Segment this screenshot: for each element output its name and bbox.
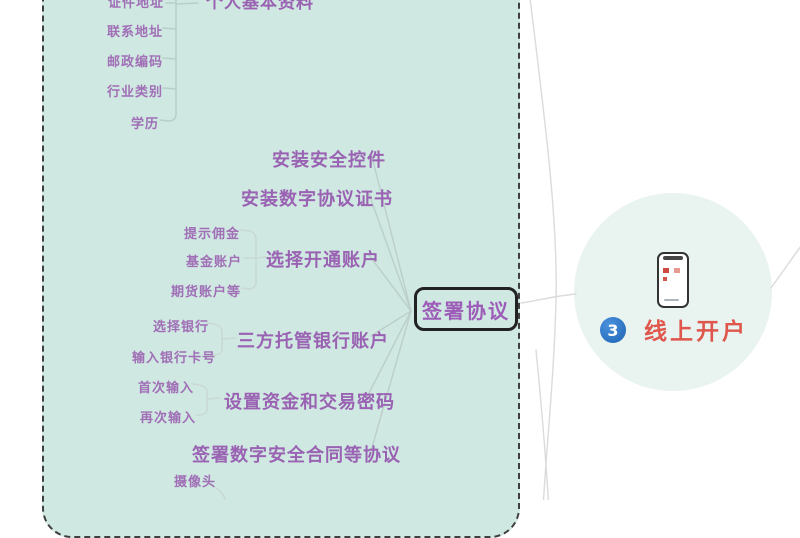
phone-screen-red-tick	[663, 277, 667, 281]
node-sign-agreement[interactable]: 签署协议	[414, 287, 518, 331]
node-education[interactable]: 学历	[131, 113, 159, 132]
smartphone-icon	[657, 252, 689, 308]
node-camera[interactable]: 摄像头	[174, 471, 216, 490]
node-industry-category[interactable]: 行业类别	[107, 81, 163, 100]
node-postal-code[interactable]: 邮政编码	[107, 51, 163, 70]
node-sign-digital-contract[interactable]: 签署数字安全合同等协议	[192, 441, 401, 467]
node-enter-card-number[interactable]: 输入银行卡号	[132, 347, 216, 366]
node-sign-agreement-label: 签署协议	[422, 295, 510, 324]
node-first-entry[interactable]: 首次输入	[138, 377, 194, 396]
node-choose-bank[interactable]: 选择银行	[153, 316, 209, 335]
node-personal-info-partial[interactable]: 个人基本资料	[206, 0, 314, 13]
node-contact-address[interactable]: 联系地址	[107, 21, 163, 40]
step-label-online-account: 线上开户	[644, 312, 748, 346]
mindmap-canvas: 证件地址 个人基本资料 联系地址 邮政编码 行业类别 学历 安装安全控件 安装数…	[0, 0, 800, 500]
node-commission-hint[interactable]: 提示佣金	[184, 223, 240, 242]
node-install-digital-cert[interactable]: 安装数字协议证书	[241, 185, 393, 211]
node-choose-account[interactable]: 选择开通账户	[266, 246, 380, 272]
node-custody-bank-account[interactable]: 三方托管银行账户	[237, 327, 389, 353]
node-install-security-control[interactable]: 安装安全控件	[272, 146, 386, 172]
node-futures-account[interactable]: 期货账户等	[171, 281, 241, 300]
phone-screen-pink-block	[674, 268, 680, 273]
node-second-entry[interactable]: 再次输入	[140, 407, 196, 426]
phone-screen-red-block	[663, 268, 669, 273]
node-fund-account[interactable]: 基金账户	[186, 251, 242, 270]
phone-notch-bar	[663, 256, 683, 260]
step-number-badge: 3	[600, 317, 626, 343]
node-set-passwords[interactable]: 设置资金和交易密码	[224, 388, 395, 414]
node-id-address-partial[interactable]: 证件地址	[108, 0, 164, 11]
phone-home-line	[664, 299, 679, 302]
